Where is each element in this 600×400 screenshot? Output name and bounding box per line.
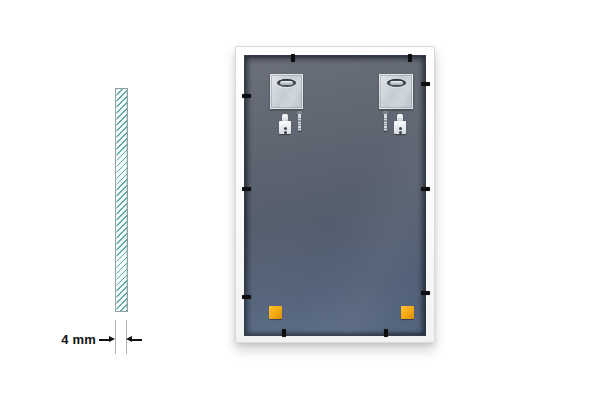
- screw: [298, 113, 301, 131]
- retainer-clip: [421, 291, 430, 295]
- keyhole-slot: [387, 79, 406, 87]
- wall-plug: [394, 114, 406, 134]
- retainer-clip: [408, 54, 412, 62]
- wall-plug: [279, 114, 291, 134]
- retainer-clip: [242, 94, 251, 98]
- hanging-plate: [379, 74, 413, 109]
- retainer-clip: [421, 187, 430, 191]
- keyhole-slot: [277, 79, 296, 87]
- thickness-label: 4 mm: [46, 332, 96, 347]
- retainer-clip: [242, 187, 251, 191]
- retainer-clip: [384, 329, 388, 337]
- hanging-plate: [270, 74, 303, 109]
- bumper-pad: [401, 306, 414, 319]
- bumper-pad: [269, 306, 282, 319]
- product-image: 4 mm: [0, 0, 600, 400]
- glass-strip: [115, 88, 128, 312]
- retainer-clip: [282, 329, 286, 337]
- dimension-arrow-left-icon: [126, 336, 142, 343]
- screw: [384, 113, 387, 131]
- extension-line-left: [115, 320, 116, 354]
- retainer-clip: [291, 54, 295, 62]
- dimension-arrow-right-icon: [99, 336, 115, 343]
- mirror-frame-back: [235, 46, 435, 343]
- back-panel: [244, 55, 426, 336]
- retainer-clip: [421, 82, 430, 86]
- retainer-clip: [242, 295, 251, 299]
